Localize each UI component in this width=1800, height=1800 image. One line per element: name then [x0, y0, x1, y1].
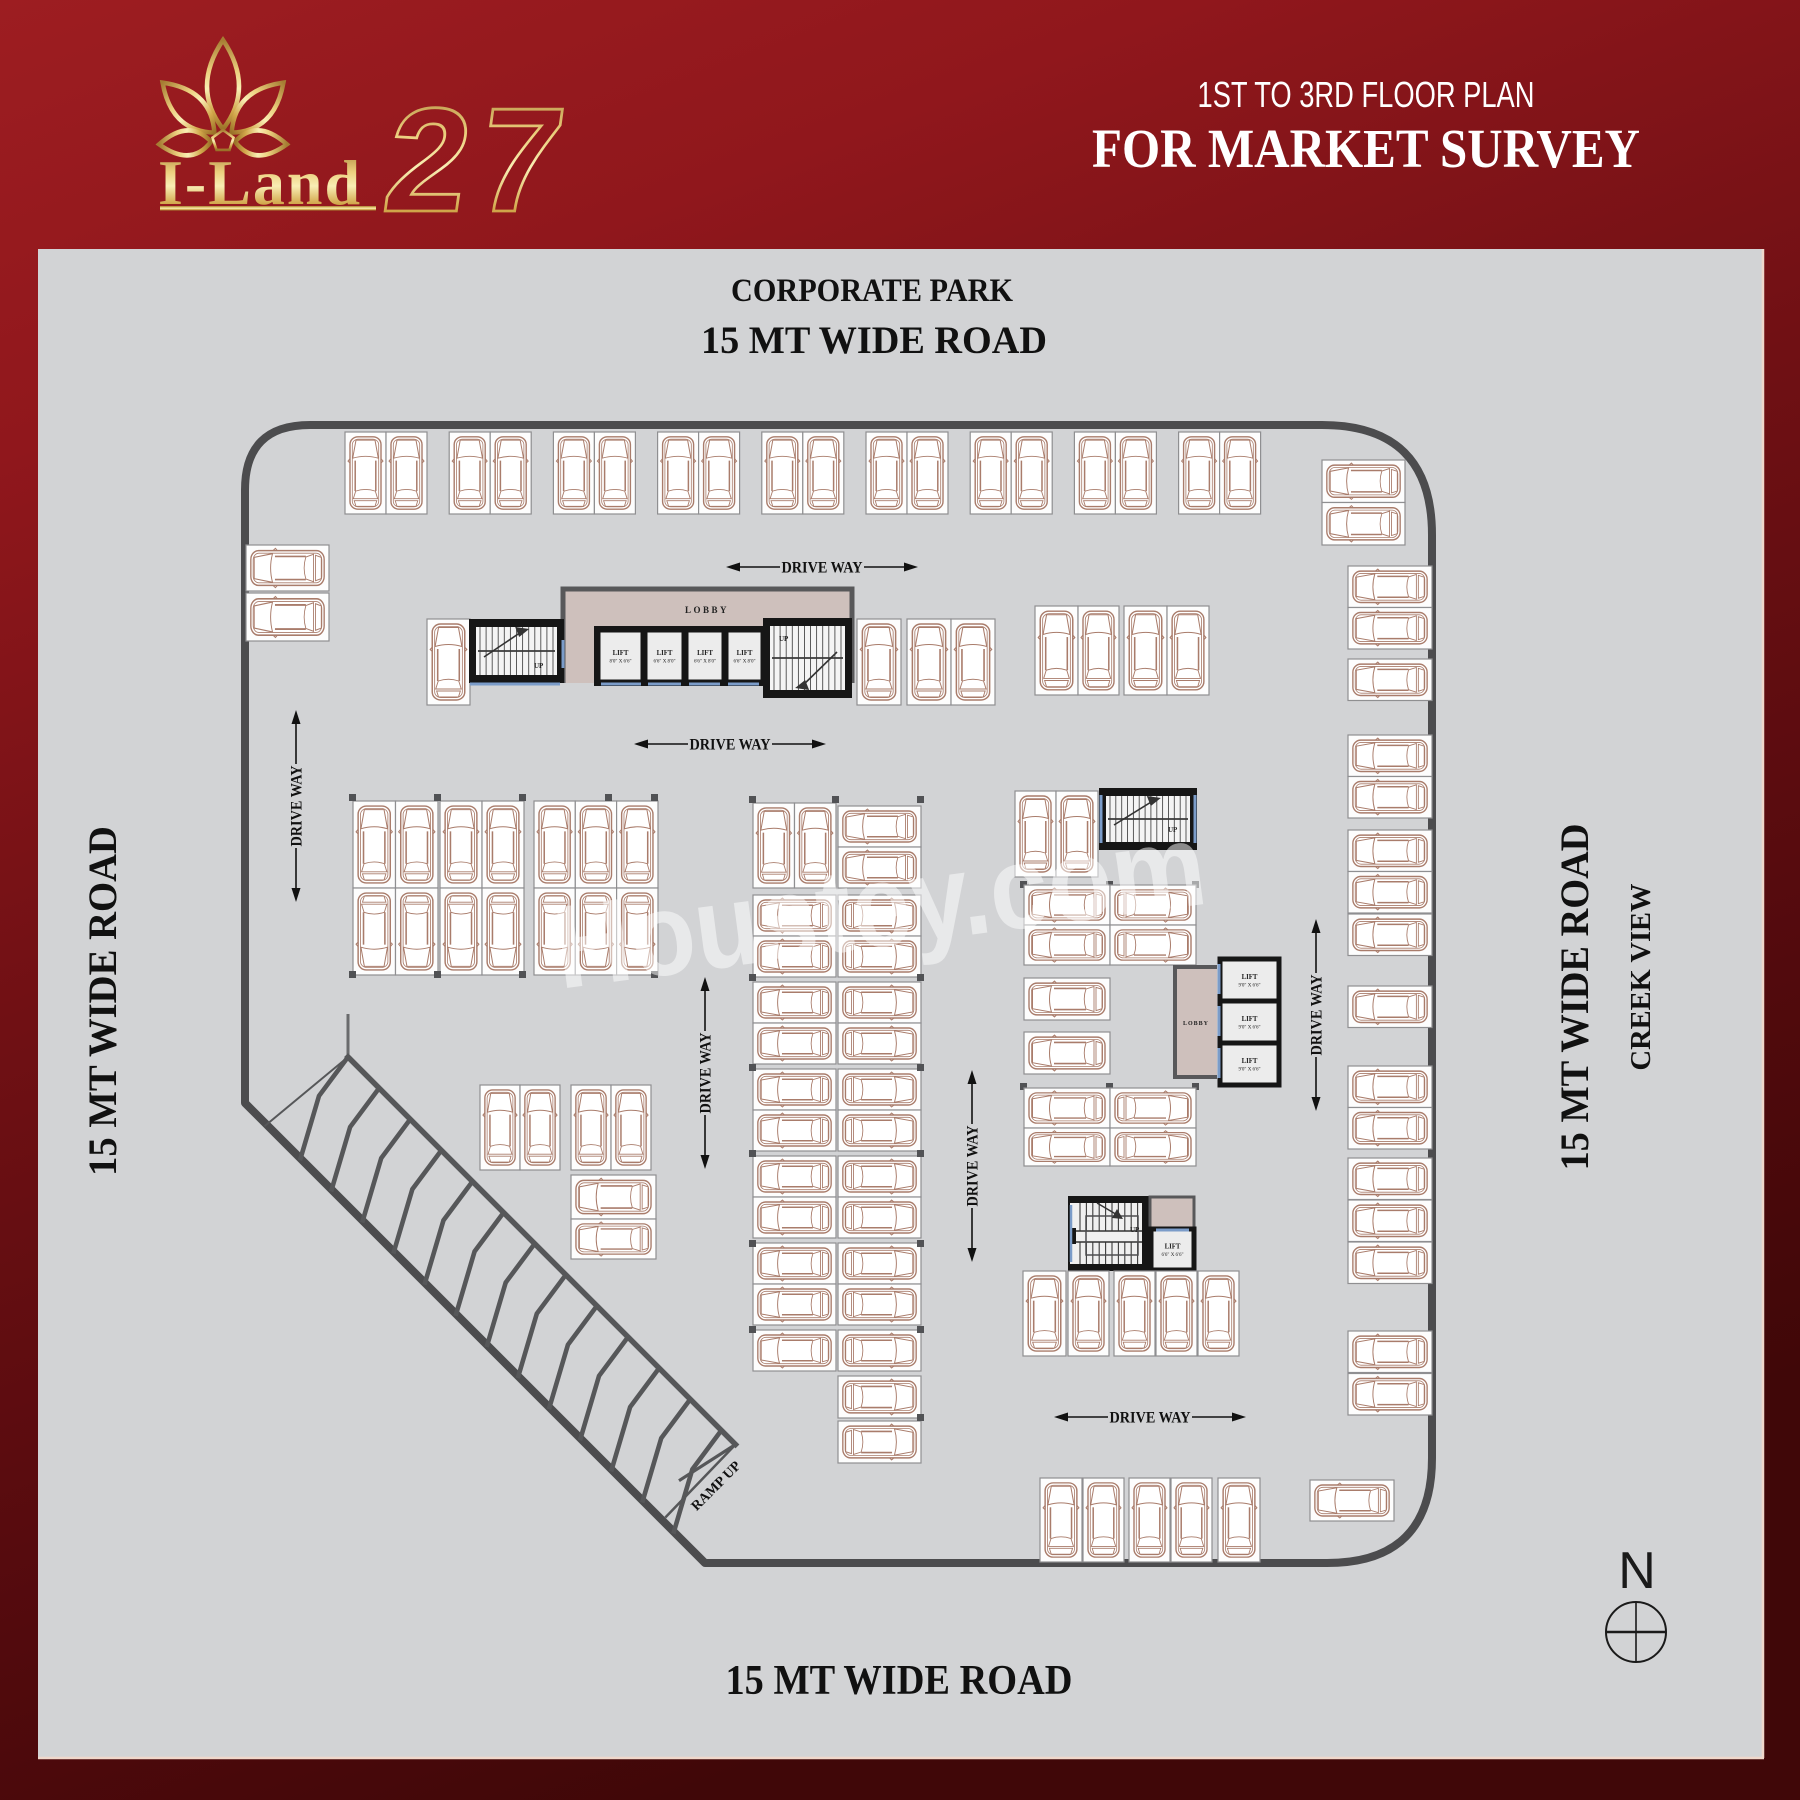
svg-text:LOBBY: LOBBY — [685, 605, 729, 615]
svg-text:LIFT: LIFT — [1242, 974, 1258, 981]
svg-text:LIFT: LIFT — [657, 650, 673, 657]
svg-text:6'6" X 6'6": 6'6" X 6'6" — [1162, 1253, 1184, 1258]
svg-text:LIFT: LIFT — [697, 650, 713, 657]
svg-text:15 MT WIDE ROAD: 15 MT WIDE ROAD — [726, 1658, 1073, 1704]
svg-text:DRIVE WAY: DRIVE WAY — [690, 737, 771, 754]
svg-text:6'6" X 8'0": 6'6" X 8'0" — [734, 660, 756, 665]
svg-text:15 MT WIDE ROAD: 15 MT WIDE ROAD — [1552, 824, 1597, 1171]
svg-text:DRIVE WAY: DRIVE WAY — [782, 560, 863, 577]
svg-text:LOBBY: LOBBY — [1183, 1021, 1209, 1027]
svg-text:CREEK VIEW: CREEK VIEW — [1626, 884, 1657, 1071]
svg-text:N: N — [1618, 1542, 1656, 1600]
svg-text:1ST TO 3RD FLOOR PLAN: 1ST TO 3RD FLOOR PLAN — [1198, 74, 1535, 115]
svg-text:15 MT WIDE ROAD: 15 MT WIDE ROAD — [701, 319, 1047, 362]
svg-text:LIFT: LIFT — [1165, 1244, 1181, 1251]
svg-text:DRIVE WAY: DRIVE WAY — [698, 1033, 715, 1114]
svg-text:6'6" X 8'0": 6'6" X 8'0" — [654, 660, 676, 665]
svg-text:DRIVE WAY: DRIVE WAY — [1110, 1410, 1191, 1427]
svg-text:9'0" X 6'6": 9'0" X 6'6" — [1239, 984, 1261, 989]
svg-text:CORPORATE PARK: CORPORATE PARK — [731, 273, 1013, 309]
svg-text:FOR MARKET SURVEY: FOR MARKET SURVEY — [1092, 118, 1640, 179]
svg-text:LIFT: LIFT — [737, 650, 753, 657]
svg-text:DRIVE WAY: DRIVE WAY — [1309, 975, 1326, 1056]
svg-text:9'0" X 6'6": 9'0" X 6'6" — [1239, 1068, 1261, 1073]
svg-text:UP: UP — [1130, 1226, 1140, 1234]
svg-text:UP: UP — [534, 662, 544, 670]
svg-text:LIFT: LIFT — [613, 650, 629, 657]
svg-text:LIFT: LIFT — [1242, 1016, 1258, 1023]
svg-text:15 MT WIDE ROAD: 15 MT WIDE ROAD — [80, 826, 125, 1176]
svg-text:UP: UP — [779, 635, 789, 643]
svg-text:6'6" X 8'0": 6'6" X 8'0" — [694, 660, 716, 665]
svg-text:DRIVE WAY: DRIVE WAY — [965, 1126, 982, 1207]
svg-text:27: 27 — [376, 77, 584, 243]
svg-text:DRIVE WAY: DRIVE WAY — [289, 766, 306, 847]
svg-text:LIFT: LIFT — [1242, 1058, 1258, 1065]
svg-text:8'0" X 6'6": 8'0" X 6'6" — [610, 660, 632, 665]
svg-text:9'0" X 6'6": 9'0" X 6'6" — [1239, 1026, 1261, 1031]
